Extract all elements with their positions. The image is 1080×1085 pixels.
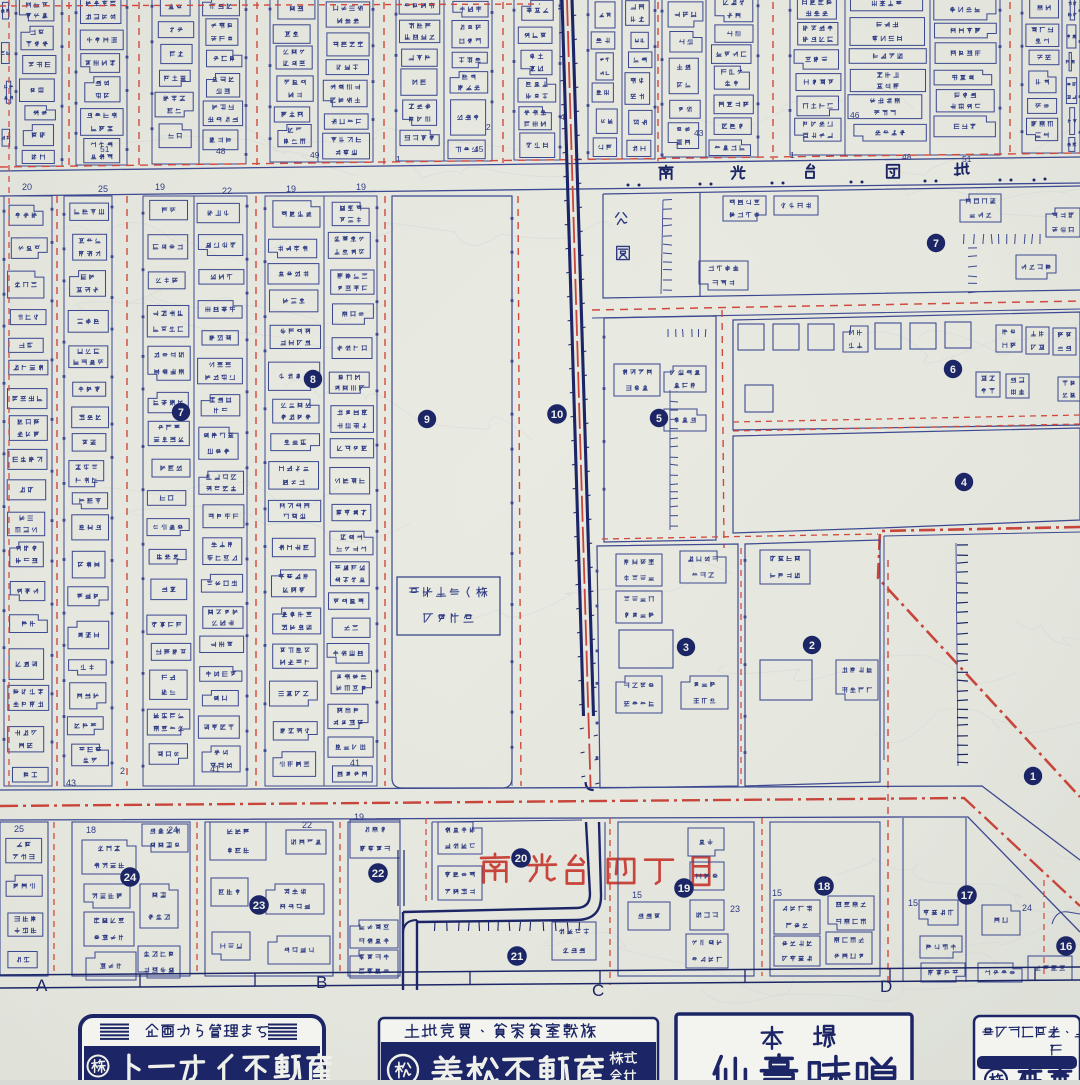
svg-text:19: 19 bbox=[356, 182, 366, 192]
svg-text:48: 48 bbox=[902, 152, 912, 162]
svg-text:20: 20 bbox=[22, 182, 32, 192]
svg-text:22: 22 bbox=[302, 820, 312, 830]
svg-text:18: 18 bbox=[818, 881, 831, 893]
svg-text:15: 15 bbox=[772, 888, 782, 898]
svg-text:15: 15 bbox=[632, 890, 642, 900]
svg-text:24: 24 bbox=[168, 825, 178, 835]
svg-text:1: 1 bbox=[1030, 771, 1036, 783]
svg-text:B: B bbox=[316, 973, 327, 992]
svg-text:7: 7 bbox=[178, 407, 184, 419]
svg-text:17: 17 bbox=[961, 890, 974, 902]
svg-text:19: 19 bbox=[155, 182, 165, 192]
svg-text:25: 25 bbox=[14, 824, 24, 834]
svg-text:22: 22 bbox=[222, 186, 232, 196]
svg-text:8: 8 bbox=[310, 374, 316, 386]
svg-text:D: D bbox=[880, 977, 892, 996]
svg-text:41: 41 bbox=[350, 758, 360, 768]
svg-text:2: 2 bbox=[809, 640, 815, 652]
svg-text:16: 16 bbox=[1060, 941, 1073, 953]
svg-text:43: 43 bbox=[694, 128, 704, 138]
svg-text:9: 9 bbox=[424, 414, 430, 426]
svg-text:3: 3 bbox=[683, 642, 689, 654]
svg-text:5: 5 bbox=[656, 413, 662, 425]
svg-text:43: 43 bbox=[66, 778, 76, 788]
svg-text:20: 20 bbox=[515, 853, 528, 865]
svg-text:C: C bbox=[592, 981, 604, 1000]
svg-text:49: 49 bbox=[310, 150, 320, 160]
svg-text:25: 25 bbox=[98, 184, 108, 194]
svg-text:51: 51 bbox=[100, 144, 110, 154]
svg-text:6: 6 bbox=[950, 364, 956, 376]
svg-text:4: 4 bbox=[961, 477, 967, 489]
svg-text:1: 1 bbox=[790, 150, 795, 160]
svg-text:24: 24 bbox=[124, 872, 137, 884]
svg-text:2: 2 bbox=[120, 766, 125, 776]
svg-text:23: 23 bbox=[730, 904, 740, 914]
svg-text:A: A bbox=[36, 976, 48, 995]
svg-text:23: 23 bbox=[253, 900, 266, 912]
svg-text:45: 45 bbox=[474, 144, 484, 154]
svg-text:22: 22 bbox=[372, 868, 385, 880]
svg-text:48: 48 bbox=[216, 146, 226, 156]
svg-text:10: 10 bbox=[551, 409, 564, 421]
svg-text:19: 19 bbox=[354, 812, 364, 822]
svg-text:19: 19 bbox=[286, 184, 296, 194]
svg-text:41: 41 bbox=[210, 764, 220, 774]
svg-text:7: 7 bbox=[933, 238, 939, 250]
svg-text:2: 2 bbox=[486, 122, 491, 132]
svg-text:18: 18 bbox=[86, 825, 96, 835]
svg-text:46: 46 bbox=[850, 110, 860, 120]
svg-text:15: 15 bbox=[908, 898, 918, 908]
svg-text:24: 24 bbox=[1022, 903, 1032, 913]
svg-text:19: 19 bbox=[678, 883, 691, 895]
svg-text:21: 21 bbox=[511, 951, 524, 963]
